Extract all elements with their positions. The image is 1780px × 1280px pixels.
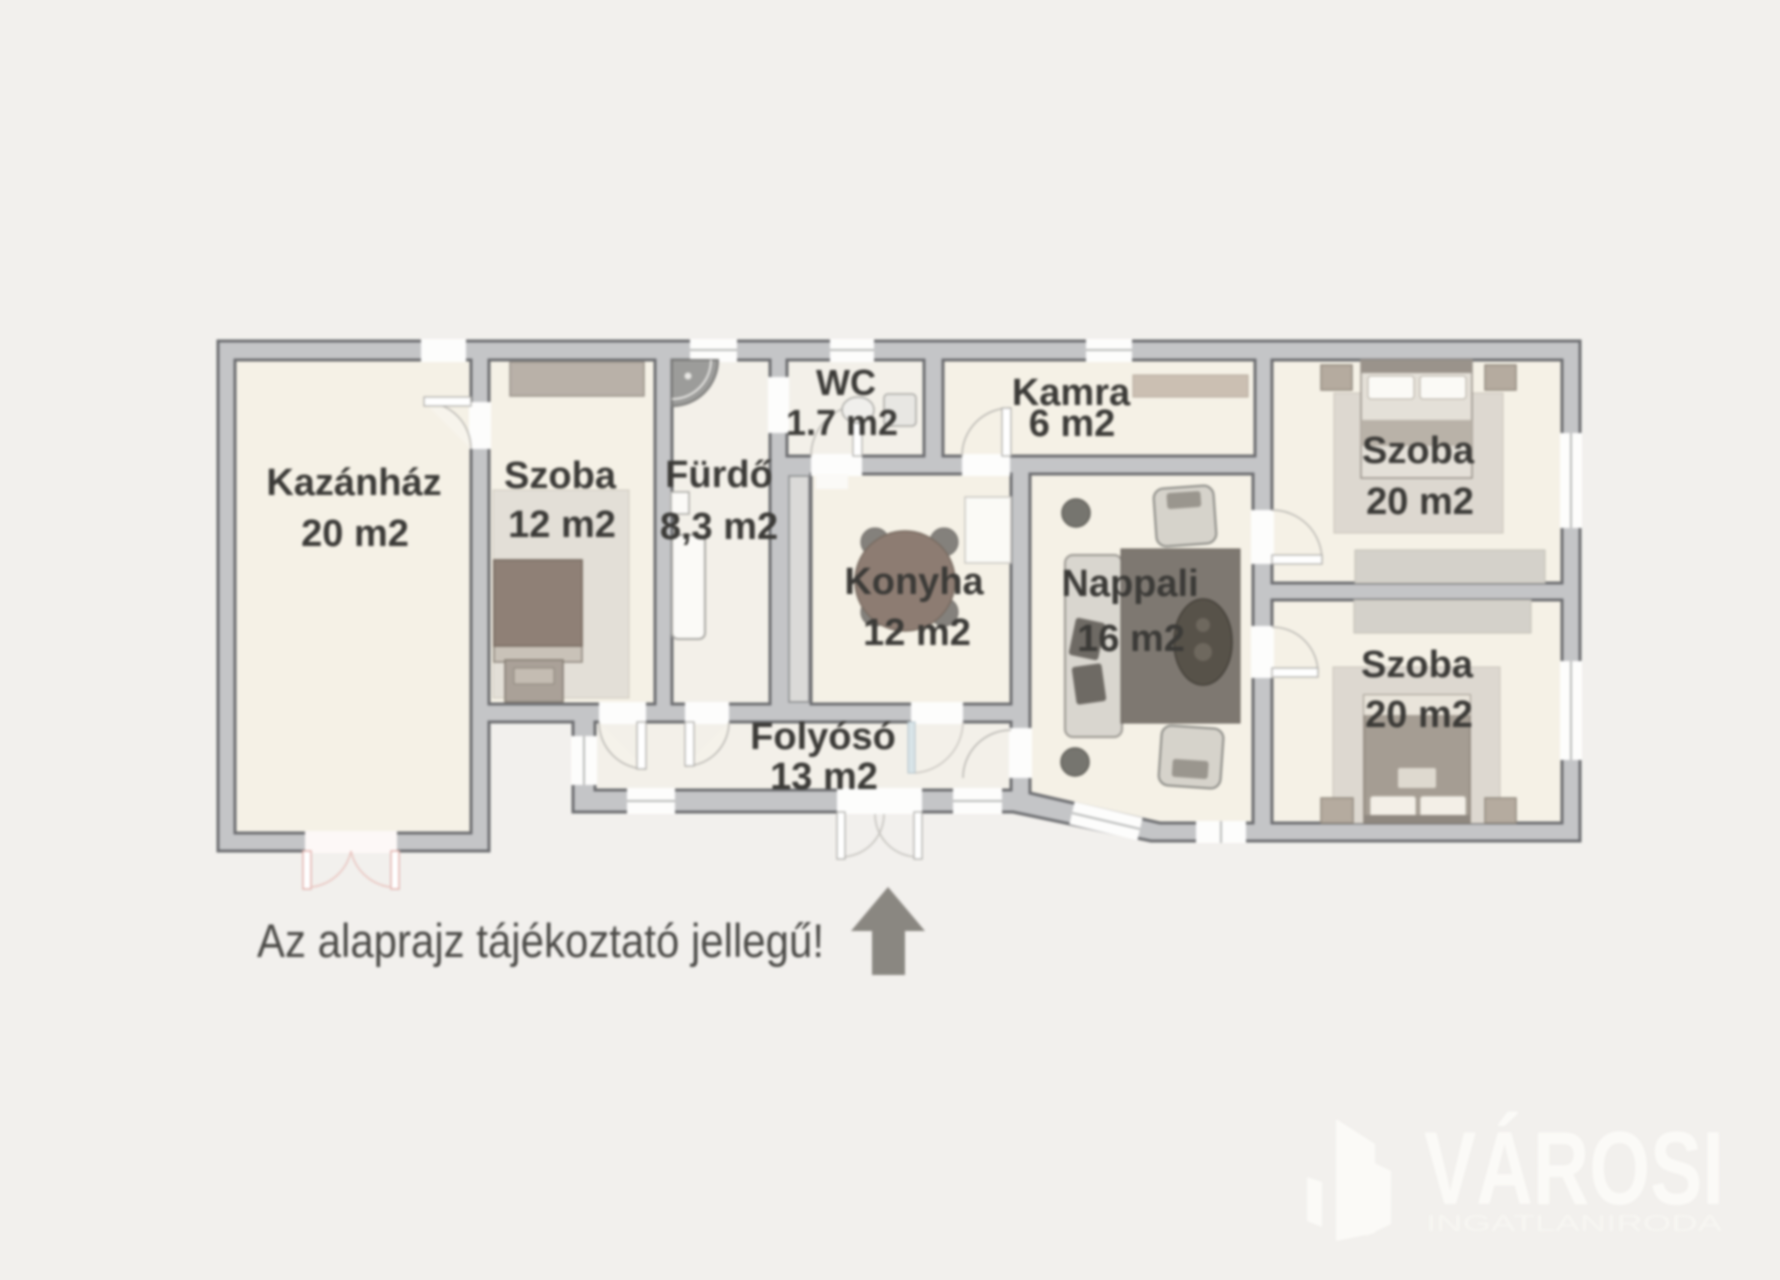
svg-text:Folyósó: Folyósó: [750, 716, 896, 758]
svg-text:12 m2: 12 m2: [863, 612, 971, 654]
svg-text:1.7 m2: 1.7 m2: [786, 402, 898, 443]
svg-text:Szoba: Szoba: [1362, 430, 1475, 472]
svg-text:INGATLANIRODA: INGATLANIRODA: [1426, 1210, 1723, 1236]
svg-text:Szoba: Szoba: [504, 455, 617, 497]
svg-text:20 m2: 20 m2: [301, 513, 409, 555]
svg-text:Szoba: Szoba: [1361, 644, 1474, 686]
svg-text:20 m2: 20 m2: [1365, 694, 1473, 736]
svg-text:6 m2: 6 m2: [1029, 403, 1116, 445]
svg-text:16 m2: 16 m2: [1077, 618, 1185, 660]
svg-text:Kazánház: Kazánház: [266, 462, 441, 504]
svg-text:12 m2: 12 m2: [508, 504, 616, 546]
svg-text:8,3 m2: 8,3 m2: [660, 506, 778, 548]
svg-text:Fürdő: Fürdő: [665, 454, 773, 496]
svg-text:Az alaprajz tájékoztató jelleg: Az alaprajz tájékoztató jellegű!: [257, 914, 824, 967]
svg-text:20 m2: 20 m2: [1366, 481, 1474, 523]
svg-text:Konyha: Konyha: [844, 561, 984, 603]
svg-text:Nappali: Nappali: [1061, 563, 1198, 605]
svg-text:13 m2: 13 m2: [770, 756, 878, 798]
svg-text:WC: WC: [816, 362, 876, 403]
